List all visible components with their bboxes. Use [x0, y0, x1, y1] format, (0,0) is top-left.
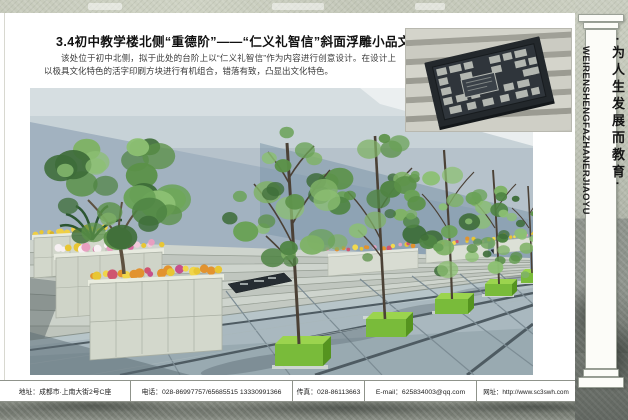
grass-cube [272, 336, 331, 369]
slogan-chinese: ·为人生发展而教育· [610, 37, 625, 190]
contact-website: 网址：http://www.sc3swh.com [476, 381, 575, 401]
logo-fragment [88, 3, 122, 10]
page-edge-line [4, 13, 5, 380]
description-paragraph: 该处位于初中北侧，拟于此处的台阶上以“仁义礼智信”作为内容进行创意设计。在设计上… [44, 52, 396, 78]
column-cap [578, 14, 624, 22]
page: { "header": { "title": "3.4初中教学楼北侧“重德阶”—… [0, 0, 628, 420]
column-cap [583, 22, 619, 29]
logo-fragment [415, 3, 445, 10]
slogan-column: ·为人生发展而教育· WEIRENSHENGFAZHANERJIAOYU [585, 29, 617, 369]
inset-photo [405, 28, 572, 132]
logo-fragment [272, 3, 324, 10]
contact-bar: 地址：成都市·上南大街2号C座 电话：028-86997757/65685515… [0, 380, 575, 402]
top-border-strip [0, 0, 628, 13]
bottom-border-strip [0, 402, 628, 420]
right-sidebar: ·为人生发展而教育· WEIRENSHENGFAZHANERJIAOYU [575, 0, 628, 420]
contact-address: 地址：成都市·上南大街2号C座 [0, 381, 130, 401]
column-base-neck [583, 369, 619, 377]
contact-email: E-mail：625834003@qq.com [364, 381, 476, 401]
page-title: 3.4初中教学楼北侧“重德阶”——“仁义礼智信”斜面浮雕小品文化 [56, 31, 424, 50]
slogan-pinyin: WEIRENSHENGFAZHANERJIAOYU [580, 46, 591, 215]
vertical-slogan: ·为人生发展而教育· WEIRENSHENGFAZHANERJIAOYU [569, 30, 628, 368]
ink-wash-texture [0, 402, 628, 420]
contact-fax: 传真：028-86113663 [292, 381, 364, 401]
grass-cube [363, 312, 413, 337]
column-base [578, 377, 624, 388]
contact-phone: 电话：028-86997757/65685515 13330991366 [130, 381, 292, 401]
